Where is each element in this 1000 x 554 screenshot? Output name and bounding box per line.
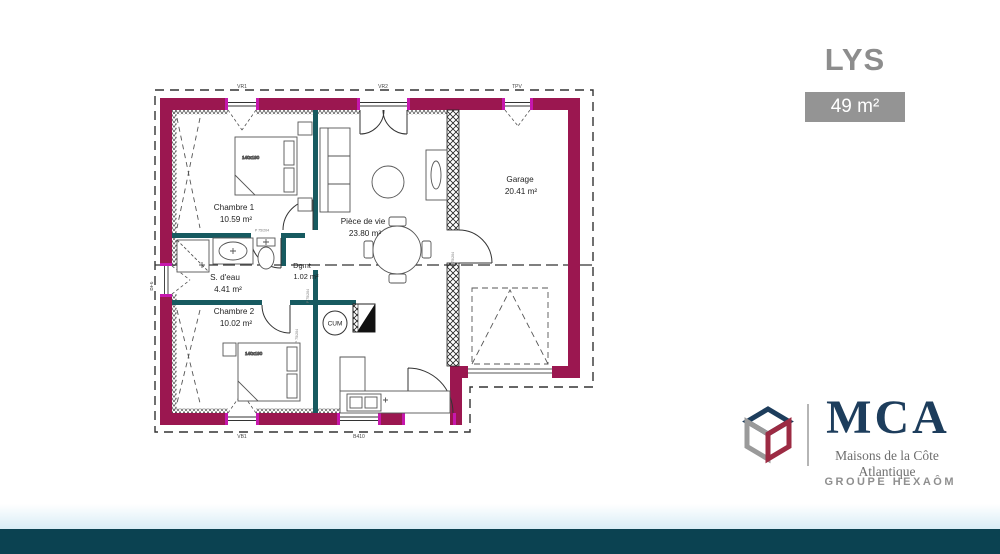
brand-group: GROUPE HEXAÔM	[816, 476, 956, 488]
washbasin-icon	[213, 238, 253, 264]
room-label-piece-de-vie: Pièce de vie 23.80 m²	[341, 217, 386, 238]
room-label-sdeau: S. d'eau 4.41 m²	[210, 273, 242, 294]
brand-name: MCA	[818, 390, 958, 445]
bathroom-fixtures	[177, 238, 275, 272]
sofa-icon	[320, 128, 350, 212]
svg-text:S. d'eau: S. d'eau	[210, 273, 240, 282]
garage-divider-wall	[447, 110, 459, 366]
logo-divider	[807, 404, 809, 466]
door-label: P 75/204	[451, 252, 455, 266]
door-label: P 75/204	[295, 329, 299, 343]
furniture-living	[320, 128, 447, 283]
window-label: VR2	[378, 84, 388, 90]
sideboard-icon	[426, 150, 447, 200]
mca-cube-logo	[740, 400, 796, 468]
page-title: LYS	[795, 42, 915, 78]
svg-text:23.80 m²: 23.80 m²	[349, 229, 382, 238]
area-badge: 49 m²	[805, 92, 905, 122]
room-label-chambre1: Chambre 1 10.59 m²	[214, 203, 255, 224]
svg-text:Dgmt: Dgmt	[293, 261, 311, 270]
page: LYS 49 m²	[0, 0, 1000, 554]
svg-text:1.02 m²: 1.02 m²	[293, 272, 319, 281]
wardrobe-icon	[177, 118, 200, 228]
svg-text:Chambre 2: Chambre 2	[214, 307, 255, 316]
wardrobe-icon	[177, 310, 200, 403]
svg-text:10.59 m²: 10.59 m²	[220, 215, 253, 224]
room-label-chambre2: Chambre 2 10.02 m²	[214, 307, 255, 328]
bed-size-label: 140x190	[242, 155, 260, 160]
bed-icon	[235, 122, 312, 211]
svg-text:Garage: Garage	[506, 175, 534, 184]
window-label: VR1	[237, 84, 247, 90]
garage-door	[468, 288, 552, 373]
svg-text:4.41 m²: 4.41 m²	[214, 285, 242, 294]
window-label: BF6	[150, 281, 155, 290]
footer-bar	[0, 529, 1000, 554]
svg-text:Pièce de vie: Pièce de vie	[341, 217, 386, 226]
window-label: VB1	[237, 434, 247, 440]
coffee-table-icon	[372, 166, 404, 198]
room-label-garage: Garage 20.41 m²	[505, 175, 538, 196]
door-label: P 75/204	[306, 289, 310, 303]
shower-icon	[177, 240, 209, 272]
dining-table-icon	[364, 217, 431, 283]
window-label: B410	[353, 434, 365, 440]
footer-gradient	[0, 504, 1000, 529]
water-heater-label: CUM	[328, 321, 343, 328]
svg-text:Chambre 1: Chambre 1	[214, 203, 255, 212]
door-label: P 75/204	[255, 229, 269, 233]
bed-size-label: 140x190	[245, 351, 263, 356]
svg-text:10.02 m²: 10.02 m²	[220, 319, 253, 328]
svg-text:20.41 m²: 20.41 m²	[505, 187, 538, 196]
floor-plan: 140x190	[150, 78, 610, 444]
kitchen-counter	[340, 357, 450, 413]
toilet-icon	[257, 238, 275, 269]
water-heater: CUM	[323, 304, 375, 335]
window-label: TPV	[512, 84, 522, 90]
